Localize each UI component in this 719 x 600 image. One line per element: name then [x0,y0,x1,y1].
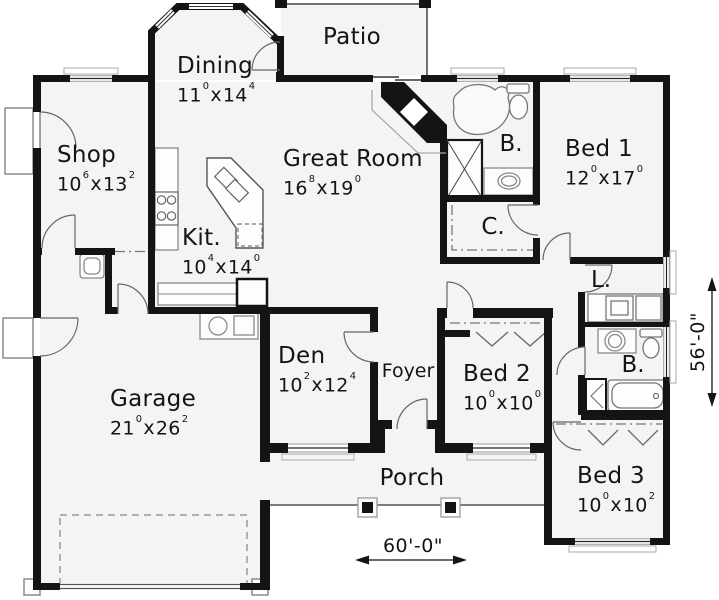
room-dim-kitchen: 104x140 [182,253,260,278]
room-dim-shop: 106x132 [57,170,135,195]
dimension-height-label: 56'-0" [687,312,709,372]
room-label-garage: Garage 210x262 [110,386,196,439]
linen-closet [586,379,606,412]
room-dim-great-room: 168x190 [283,174,423,199]
room-label-laundry: L. [591,267,611,293]
room-dim-garage: 210x262 [110,414,196,439]
room-dim-den: 102x124 [278,371,356,396]
room-label-kitchen: Kit. 104x140 [182,225,260,278]
bathtub [608,380,667,411]
vanity-master [484,168,533,195]
floor-plan-page: Patio Dining 110x144 Shop 106x132 Great … [0,0,719,600]
vanity-hall-bath [598,329,636,353]
shower-stall [447,140,482,198]
floor-areas [40,4,663,590]
room-label-great-room: Great Room 168x190 [283,146,423,199]
dimension-width-label: 60'-0" [383,535,443,557]
room-dim-bed2: 100x100 [463,389,541,414]
range-stove [155,192,178,225]
sliding-door [373,75,421,82]
washer-dryer [588,294,663,322]
entry-stoops [3,108,33,358]
room-label-hall-bath: B. [621,352,644,378]
kitchen-bar [158,279,267,306]
room-dim-bed3: 100x102 [577,491,655,516]
room-label-closet: C. [481,214,504,240]
room-label-den: Den 102x124 [278,343,356,396]
room-label-porch: Porch [380,465,445,491]
room-label-bed2: Bed 2 100x100 [463,361,541,414]
room-label-dining: Dining 110x144 [177,53,255,106]
room-label-bed1: Bed 1 120x170 [565,136,643,189]
room-label-master-bath: B. [499,131,522,157]
room-dim-bed1: 120x170 [565,164,643,189]
utility-sink [200,313,258,339]
room-dim-dining: 110x144 [177,81,255,106]
room-label-foyer: Foyer [382,360,435,382]
room-label-patio: Patio [323,24,381,50]
water-heater [80,254,104,278]
room-label-shop: Shop 106x132 [57,142,135,195]
room-label-bed3: Bed 3 100x102 [577,463,655,516]
